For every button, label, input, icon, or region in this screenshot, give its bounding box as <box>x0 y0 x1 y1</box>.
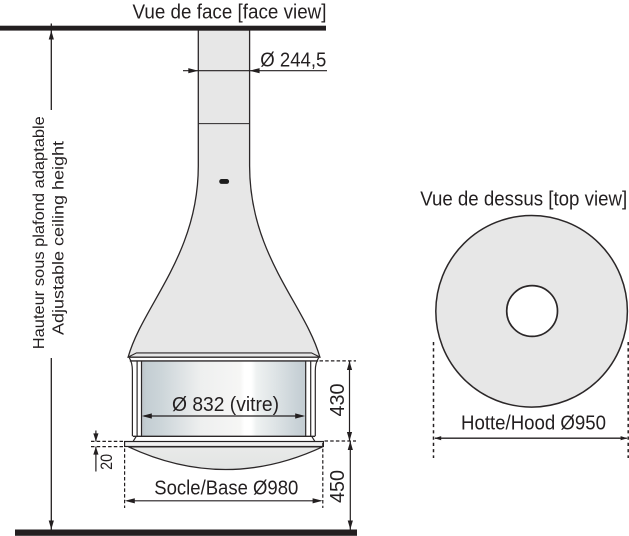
svg-text:Socle/Base Ø980: Socle/Base Ø980 <box>154 478 298 500</box>
svg-text:Ø 244,5: Ø 244,5 <box>260 50 326 72</box>
svg-text:450: 450 <box>327 470 349 503</box>
svg-text:20: 20 <box>97 454 116 470</box>
svg-text:Hotte/Hood Ø950: Hotte/Hood Ø950 <box>461 412 606 434</box>
svg-text:430: 430 <box>327 384 349 417</box>
svg-text:Vue de face [face view]: Vue de face [face view] <box>133 1 327 23</box>
svg-text:Hauteur sous plafond adaptable: Hauteur sous plafond adaptable <box>31 116 48 349</box>
svg-text:Adjustable ceiling height: Adjustable ceiling height <box>51 140 68 335</box>
svg-text:Vue de dessus [top view]: Vue de dessus [top view] <box>420 188 627 210</box>
svg-text:Ø 832 (vitre): Ø 832 (vitre) <box>172 394 279 416</box>
